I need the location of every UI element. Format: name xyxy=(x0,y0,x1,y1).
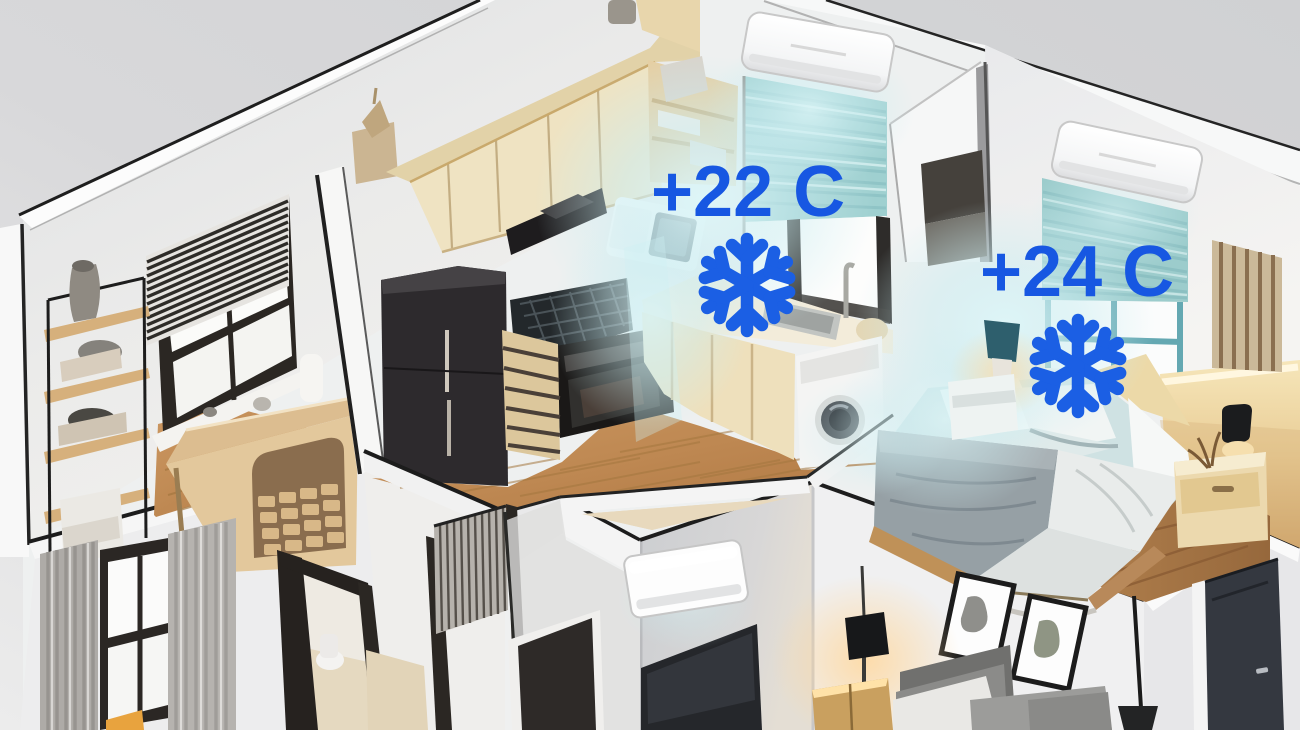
svg-text:+24 C: +24 C xyxy=(980,232,1174,312)
svg-text:+22 C: +22 C xyxy=(651,152,845,232)
